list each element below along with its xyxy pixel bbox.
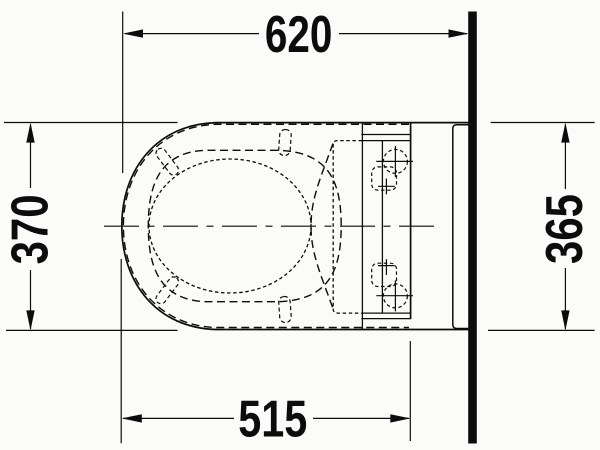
svg-text:370: 370 — [2, 194, 60, 264]
svg-text:620: 620 — [265, 6, 333, 64]
svg-text:515: 515 — [238, 391, 307, 449]
svg-text:365: 365 — [536, 194, 594, 264]
